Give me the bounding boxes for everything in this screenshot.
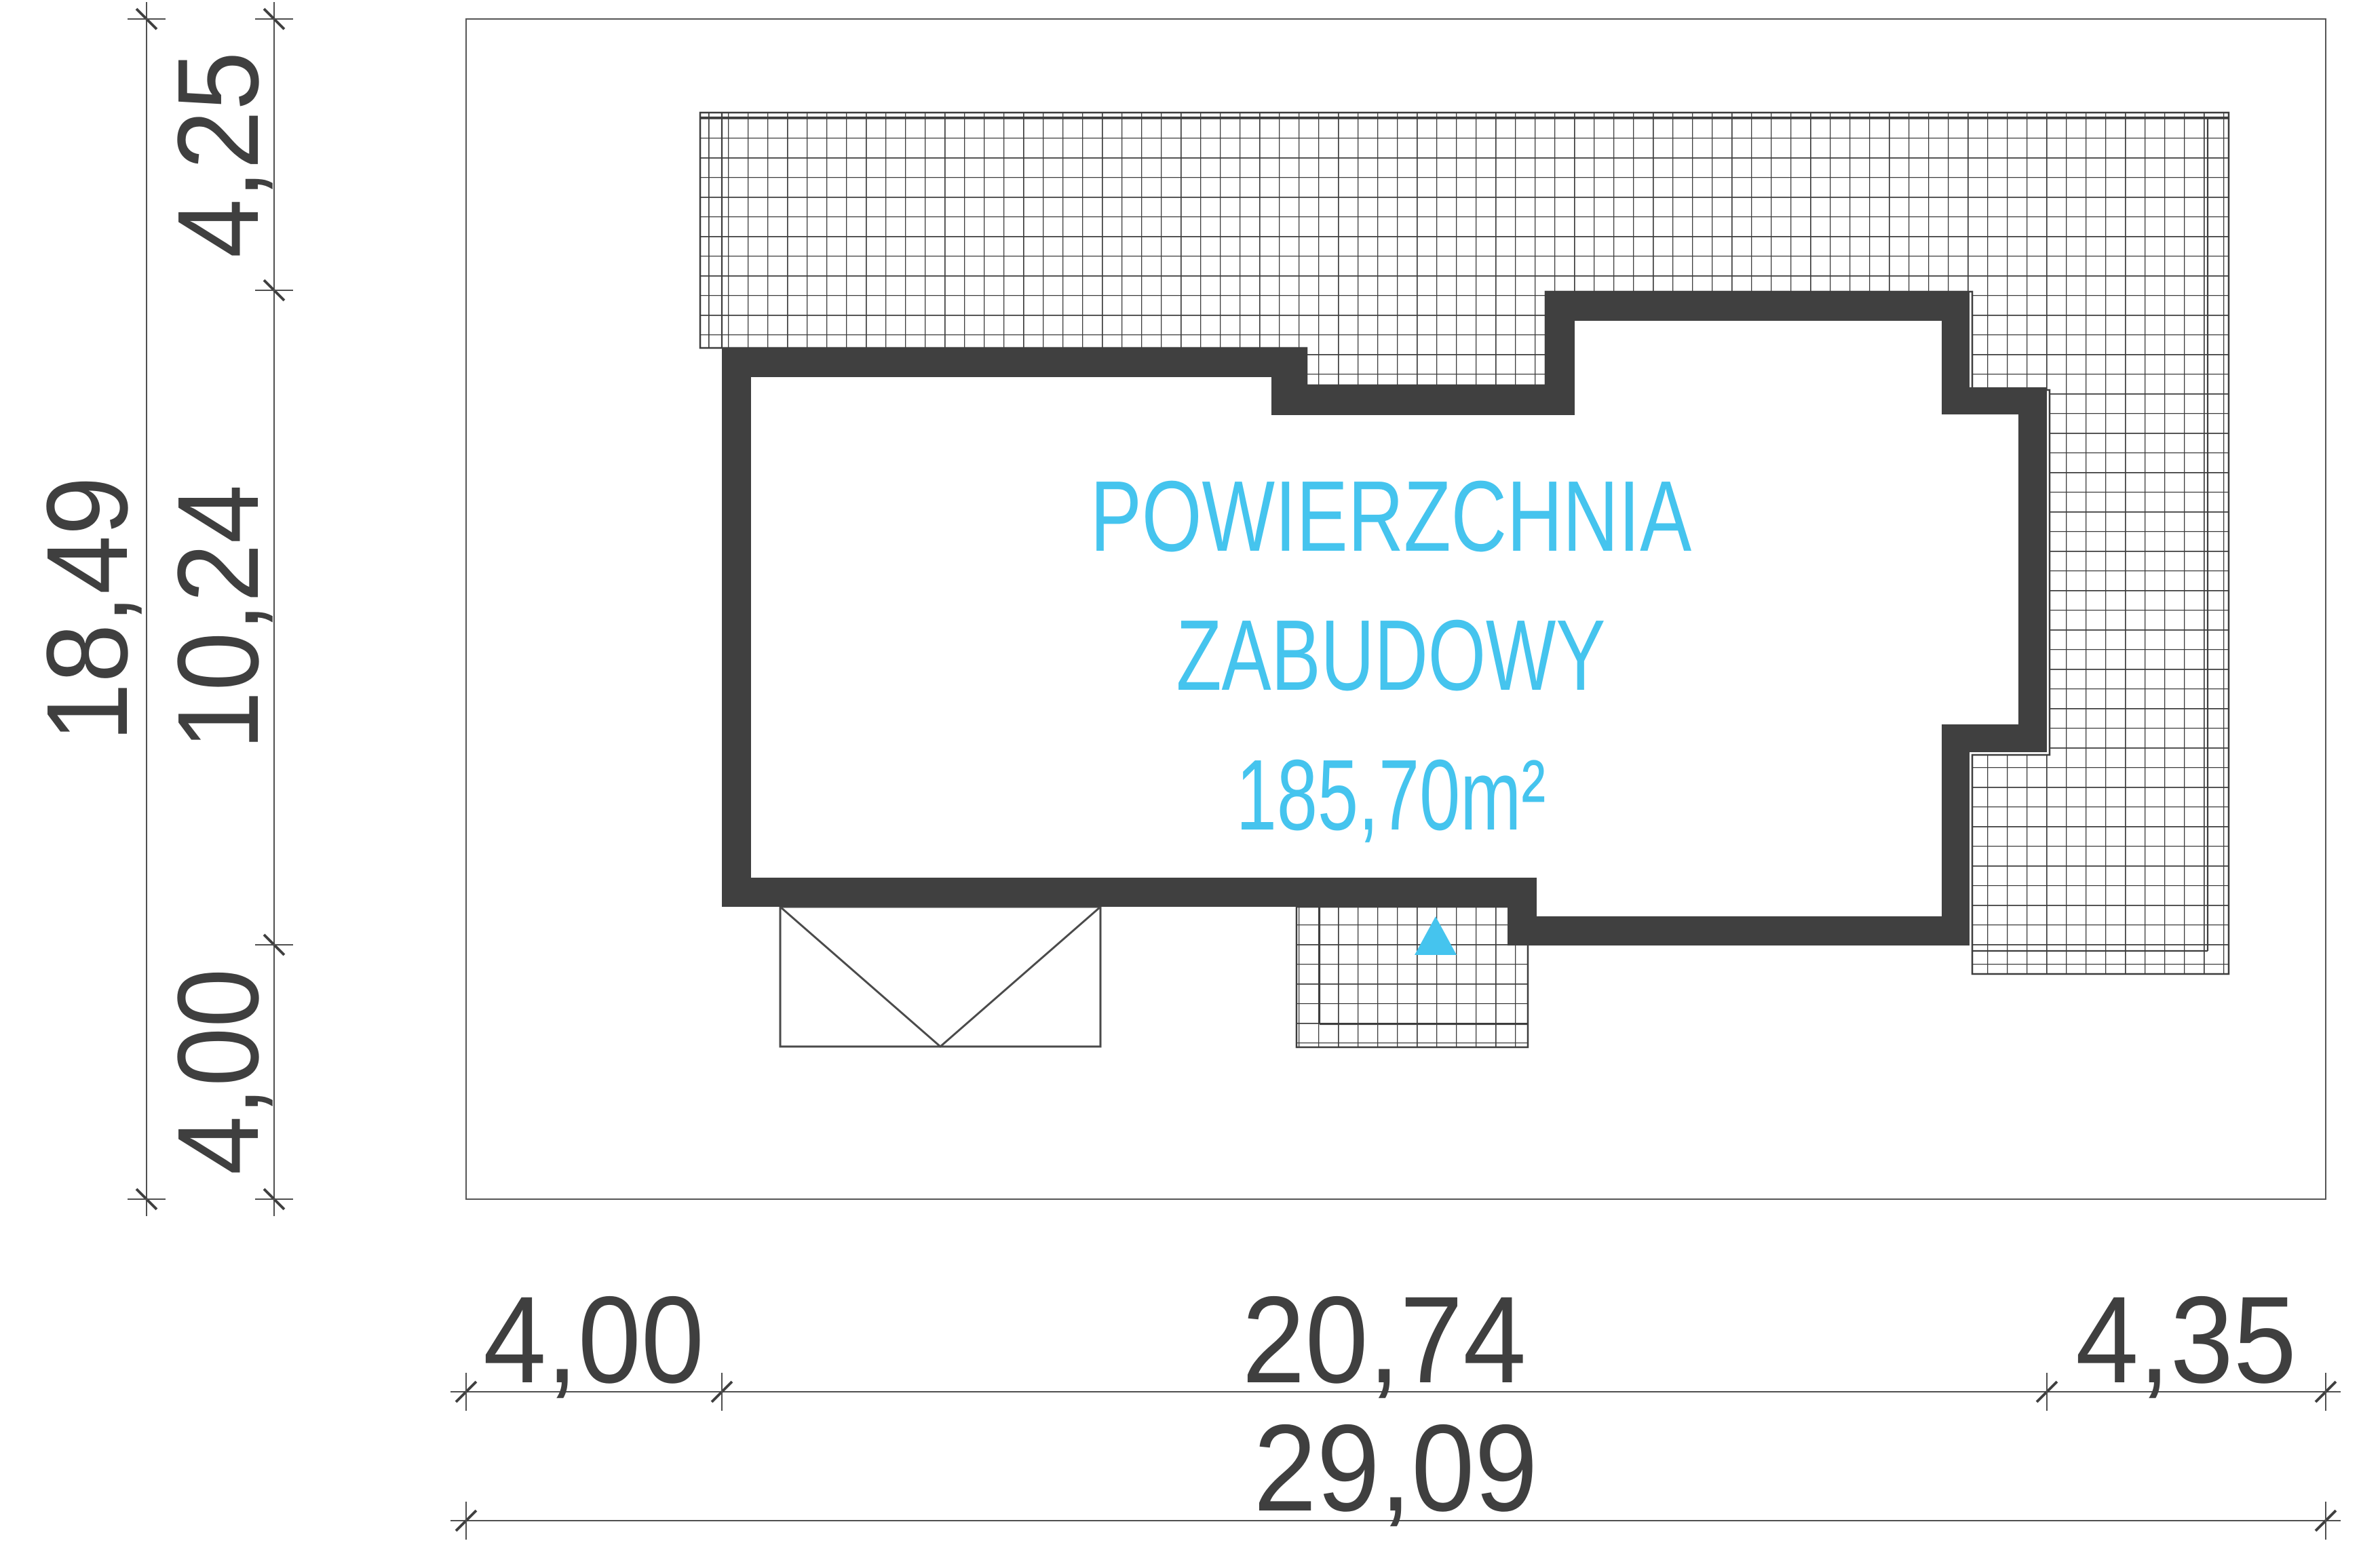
svg-text:ZABUDOWY: ZABUDOWY (1176, 599, 1606, 711)
svg-text:4,25: 4,25 (153, 52, 282, 258)
svg-text:185,70m²: 185,70m² (1236, 740, 1546, 851)
svg-text:4,00: 4,00 (483, 1272, 704, 1409)
svg-text:4,00: 4,00 (153, 969, 282, 1175)
svg-text:POWIERZCHNIA: POWIERZCHNIA (1090, 460, 1691, 572)
svg-text:29,09: 29,09 (1254, 1400, 1538, 1538)
svg-text:18,49: 18,49 (22, 476, 151, 741)
svg-text:10,24: 10,24 (153, 484, 282, 749)
svg-text:4,35: 4,35 (2075, 1272, 2297, 1409)
svg-text:20,74: 20,74 (1242, 1272, 1527, 1409)
